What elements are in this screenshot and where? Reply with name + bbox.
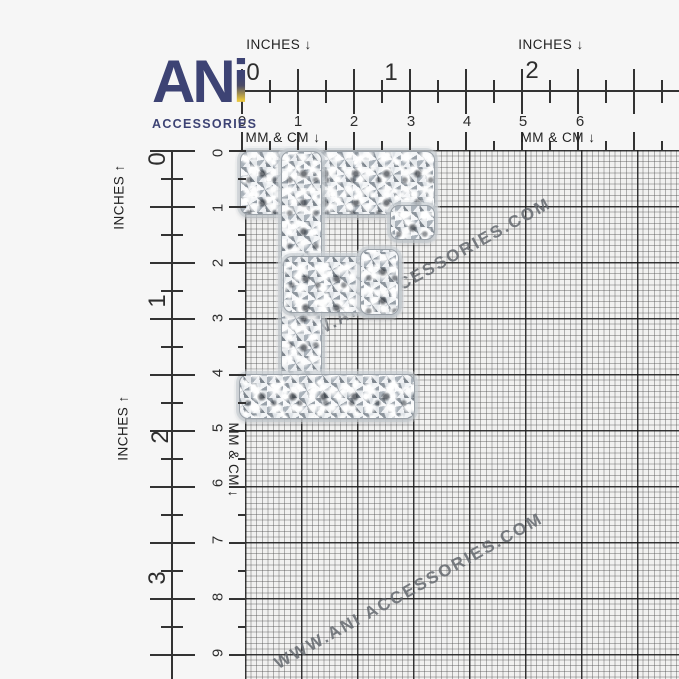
mm-cm-label-top-left: MM & CM ↓ [246,131,321,145]
left-inch-number: 2 [149,430,173,443]
mm-cm-label-left: MM & CM ↓ [226,423,240,498]
left-inch-number: 1 [146,294,170,307]
letter-value: F [238,148,239,149]
logo-wordmark: ANi [152,52,257,112]
top-inch-ruler-minor-ticks [269,80,679,103]
left-cm-number: 9 [211,649,226,657]
left-cm-number: 2 [211,259,226,267]
left-cm-number: 1 [211,204,226,212]
inches-label-left-lower: INCHES ↑ [116,395,130,461]
left-cm-number: 8 [211,593,226,601]
letter-mid-bar-end [360,249,399,315]
left-cm-number: 5 [211,424,226,432]
inches-label-left-upper: INCHES ↑ [112,164,126,230]
inches-label-top-right: INCHES ↓ [518,38,584,52]
left-inch-number: 0 [146,152,170,165]
top-cm-minor-ticks [269,141,679,150]
mm-cm-label-top-right: MM & CM ↓ [521,131,596,145]
rhinestone-letter-patch: F [238,148,435,418]
top-cm-number: 3 [407,114,415,129]
top-cm-number: 5 [519,114,527,129]
left-cm-number: 4 [211,369,226,377]
left-cm-number: 0 [211,149,226,157]
top-inch-number: 2 [525,59,538,83]
top-cm-number: 1 [294,114,302,129]
left-cm-number: 6 [211,479,226,487]
top-inch-number: 1 [384,61,397,85]
logo-accessories-text: ACCESSORIES [152,118,257,131]
letter-base-serif [239,374,415,419]
logo-text-i-accent: i [233,48,247,115]
letter-top-bar-serif [390,205,435,240]
photo-canvas: INCHES ↓ INCHES ↓ 0 1 2 0 1 2 3 4 5 6 MM… [0,0,679,679]
left-cm-number: 7 [211,536,226,544]
top-cm-number: 6 [576,114,584,129]
inches-label-top-left: INCHES ↓ [246,38,312,52]
brand-logo: ANi ACCESSORIES [152,52,257,131]
left-inch-ruler-minor-ticks [161,178,183,679]
logo-text-an: AN [152,48,233,115]
left-cm-number: 3 [211,314,226,322]
left-inch-number: 3 [146,571,170,584]
top-cm-number: 2 [350,114,358,129]
top-cm-number: 4 [463,114,471,129]
